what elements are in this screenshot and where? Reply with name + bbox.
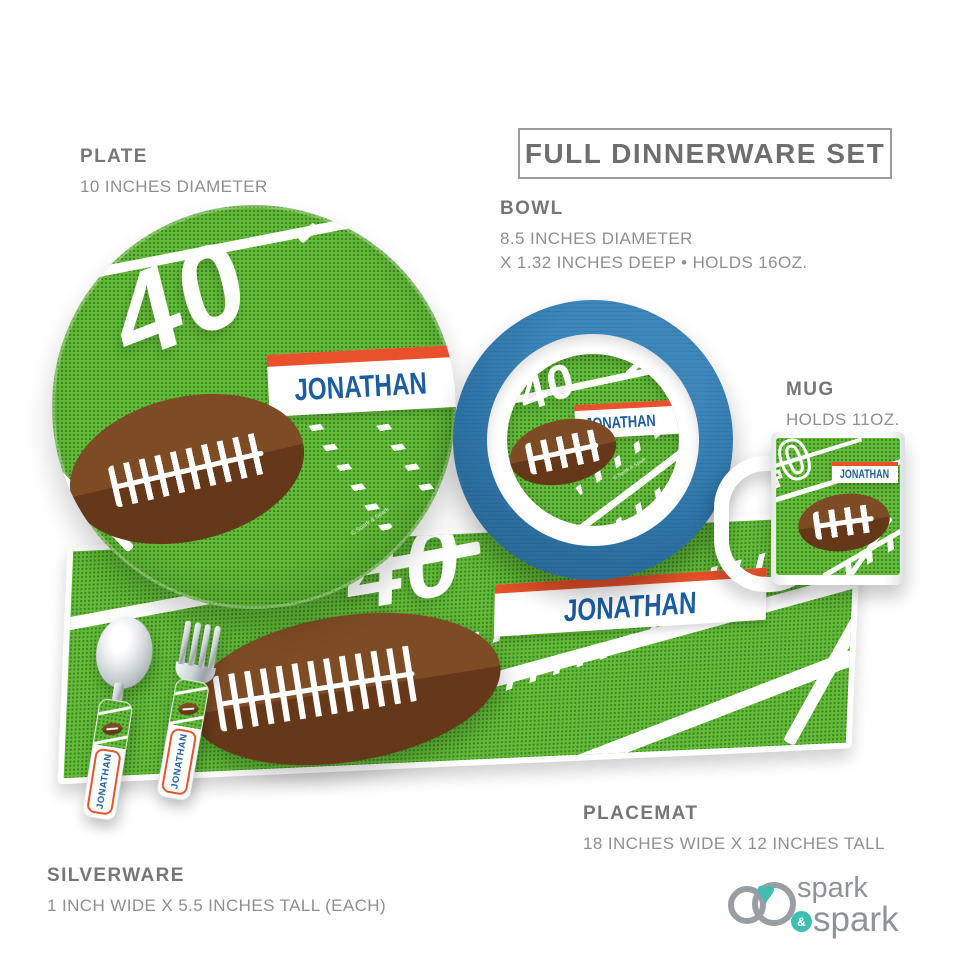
mug-name-band: JONATHAN xyxy=(832,462,898,483)
set-title: FULL DINNERWARE SET xyxy=(518,128,892,179)
fork-handle-art xyxy=(169,679,209,730)
football-laces xyxy=(107,432,267,508)
mug-body: 40 JONATHAN xyxy=(771,432,905,585)
fork-name: JONATHAN xyxy=(169,733,190,790)
silverware-label: SILVERWARE 1 INCH WIDE X 5.5 INCHES TALL… xyxy=(47,865,386,918)
brand-word-bottom: spark xyxy=(813,902,899,937)
bowl-product: 40 JONATHAN © Spark & Spark xyxy=(453,300,733,580)
product-showcase: 40 JONATHAN © Spark & Spark 40 xyxy=(0,0,960,960)
heart-icon: ♥ xyxy=(756,874,776,912)
football-laces xyxy=(212,645,418,732)
bowl-field-art: 40 JONATHAN © Spark & Spark xyxy=(507,354,679,526)
silverware-label-spec: 1 INCH WIDE X 5.5 INCHES TALL (EACH) xyxy=(47,894,386,918)
spoon-handle-art xyxy=(94,699,133,749)
mug-label-title: MUG xyxy=(786,379,900,401)
mug-label: MUG HOLDS 11OZ. xyxy=(786,379,900,432)
plate-label-spec: 10 INCHES DIAMETER xyxy=(80,175,268,199)
brand-word-top: spark xyxy=(797,874,868,903)
mug-product: 40 JONATHAN xyxy=(712,424,922,594)
brand-logo: ♥ spark & spark xyxy=(726,862,926,948)
plate-field-number: 40 xyxy=(104,224,258,377)
plate-name-band: JONATHAN xyxy=(267,341,456,417)
plate-name: JONATHAN xyxy=(294,366,428,409)
mini-football-icon xyxy=(178,702,199,715)
spoon-name: JONATHAN xyxy=(94,753,114,810)
spoon-name-plate: JONATHAN xyxy=(86,748,122,816)
placemat-label: PLACEMAT 18 INCHES WIDE X 12 INCHES TALL xyxy=(583,803,885,856)
placemat-label-title: PLACEMAT xyxy=(583,803,885,825)
football-laces xyxy=(524,429,601,475)
plate-product: 40 JONATHAN © Spark & Spark xyxy=(52,205,456,609)
football-laces xyxy=(812,504,875,540)
plate-label: PLATE 10 INCHES DIAMETER xyxy=(80,146,268,199)
fork-name-plate: JONATHAN xyxy=(161,727,198,796)
mug-field-art: 40 JONATHAN xyxy=(776,438,900,575)
placemat-name: JONATHAN xyxy=(564,585,697,629)
placemat-label-spec: 18 INCHES WIDE X 12 INCHES TALL xyxy=(583,832,885,856)
spoon-head xyxy=(91,613,158,693)
silverware-label-title: SILVERWARE xyxy=(47,865,386,887)
plate-label-title: PLATE xyxy=(80,146,268,168)
bowl-label-title: BOWL xyxy=(500,198,808,220)
mini-football-icon xyxy=(102,722,123,736)
spoon-handle: JONATHAN xyxy=(81,698,133,822)
fork-head xyxy=(172,619,227,671)
mug-label-spec: HOLDS 11OZ. xyxy=(786,408,900,432)
bowl-label-spec-1: 8.5 INCHES DIAMETER xyxy=(500,227,808,251)
brand-ampersand: & xyxy=(791,911,812,932)
bowl-label: BOWL 8.5 INCHES DIAMETER X 1.32 INCHES D… xyxy=(500,198,808,275)
bowl-label-spec-2: X 1.32 INCHES DEEP • HOLDS 16OZ. xyxy=(500,251,808,275)
mug-name: JONATHAN xyxy=(840,469,889,481)
